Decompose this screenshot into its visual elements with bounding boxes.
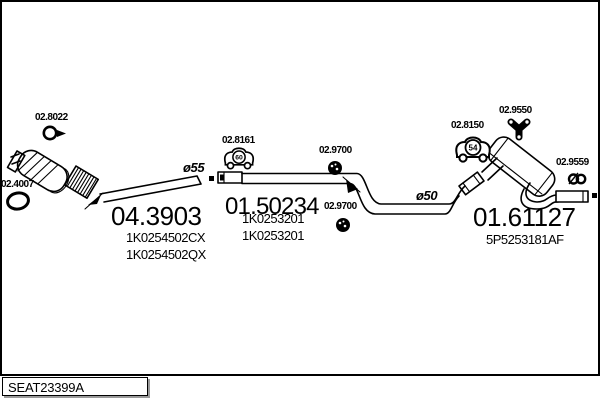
oem-ref: 1K0254502CX <box>126 230 205 245</box>
oem-ref: 1K0254502QX <box>126 247 206 262</box>
part-code-02-9700[interactable]: 02.9700 <box>324 201 357 212</box>
pipe-clamp-icon <box>41 124 67 142</box>
hanger-badge: 54 <box>469 144 478 153</box>
gasket-ring-icon <box>5 190 33 212</box>
oem-ref: 1K0253201 <box>242 228 304 243</box>
rear-silencer <box>484 133 559 200</box>
pipe-diameter-label: ø55 <box>183 160 204 175</box>
coupling-sleeve <box>218 172 242 183</box>
part-code-02-9550[interactable]: 02.9550 <box>499 105 532 116</box>
part-number-01-61127[interactable]: 01.61127 <box>473 202 576 233</box>
joint-bolt-icon <box>209 176 214 181</box>
part-code-02-8022[interactable]: 02.8022 <box>35 112 68 123</box>
front-pipe <box>100 176 201 202</box>
oem-ref: 1K0253201 <box>242 211 304 226</box>
grommet-icon <box>335 217 351 233</box>
pipe-clamp-icon <box>566 170 590 188</box>
tailpipe-end-marker-icon <box>592 193 597 198</box>
sheet-code-box: SEAT23399A <box>2 377 148 396</box>
part-code-02-9700[interactable]: 02.9700 <box>319 145 352 156</box>
part-code-02-8161[interactable]: 02.8161 <box>222 135 255 146</box>
part-code-02-8150[interactable]: 02.8150 <box>451 120 484 131</box>
part-code-02-9559[interactable]: 02.9559 <box>556 157 589 168</box>
part-number-04-3903[interactable]: 04.3903 <box>111 201 201 232</box>
part-code-02-4007[interactable]: 02.4007 <box>1 179 34 190</box>
rubber-hanger-icon: 54 <box>453 133 493 165</box>
triple-hanger-icon <box>506 118 532 142</box>
sheet-code: SEAT23399A <box>8 380 84 395</box>
pipe-diameter-label: ø50 <box>416 188 437 203</box>
rubber-hanger-icon: 60 <box>222 144 256 172</box>
flex-braid <box>65 166 99 198</box>
hanger-badge: 60 <box>235 155 243 162</box>
grommet-icon <box>327 160 343 176</box>
exhaust-parts-diagram: 60 54 02.8022 02.4007 02.8161 02.9700 02… <box>0 0 600 400</box>
oem-ref: 5P5253181AF <box>486 232 564 247</box>
